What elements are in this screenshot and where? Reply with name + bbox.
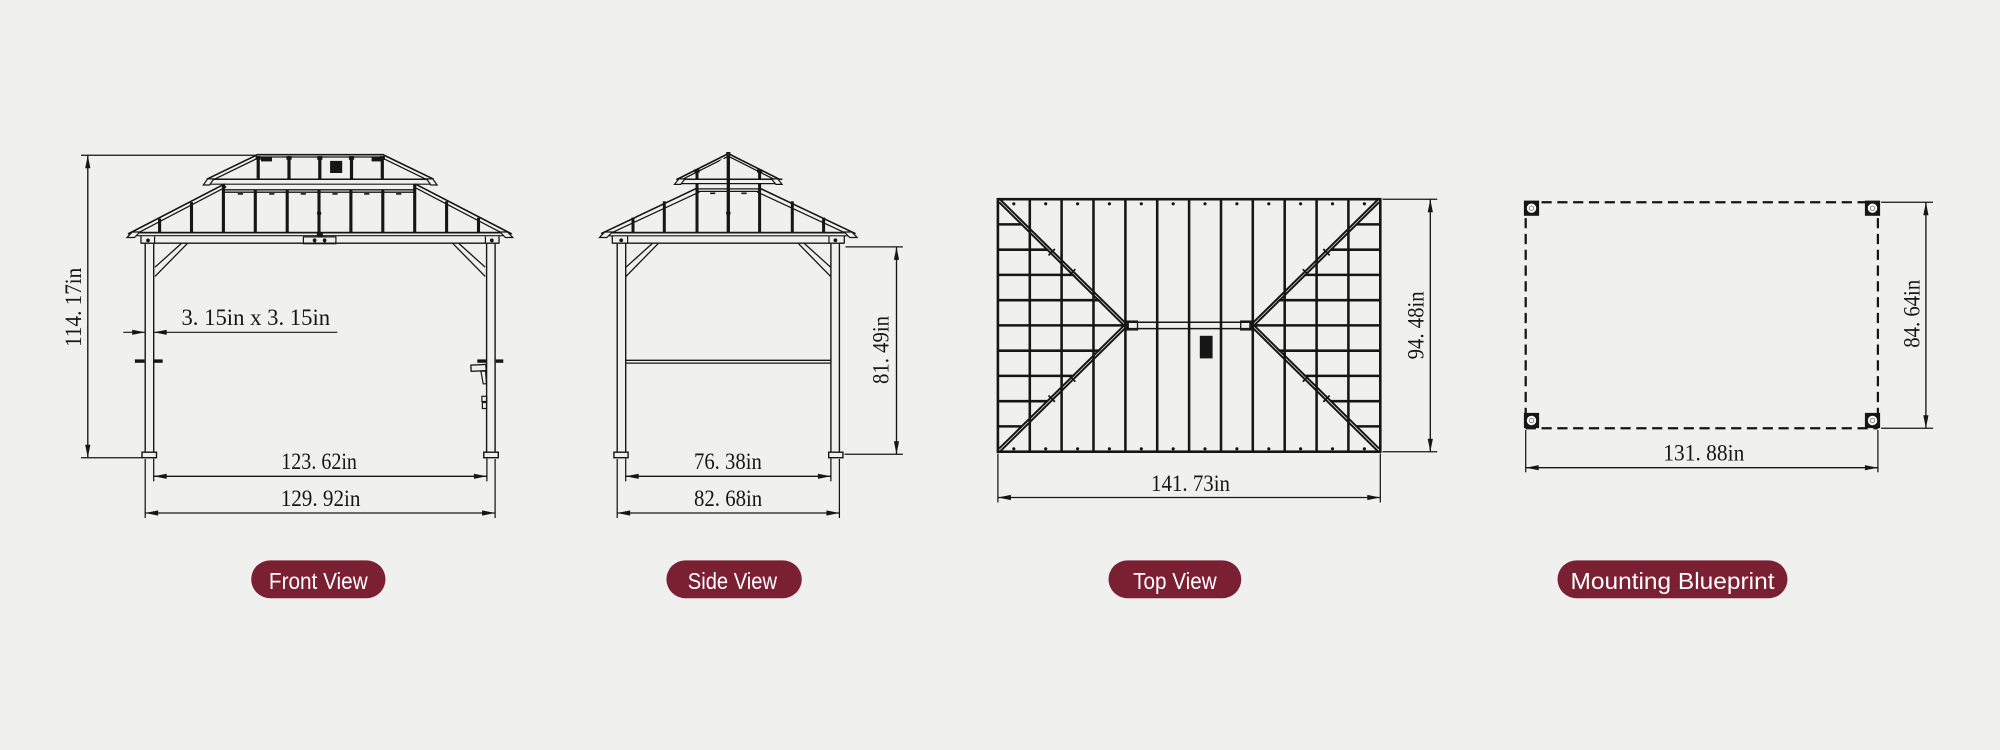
svg-text:Side View: Side View	[688, 568, 778, 594]
svg-text:82. 68in: 82. 68in	[694, 486, 762, 512]
svg-text:76. 38in: 76. 38in	[694, 449, 762, 475]
svg-text:94. 48in: 94. 48in	[1403, 291, 1429, 359]
svg-text:141. 73in: 141. 73in	[1151, 471, 1230, 497]
svg-text:131. 88in: 131. 88in	[1663, 440, 1744, 466]
svg-text:129. 92in: 129. 92in	[281, 486, 361, 512]
svg-text:Front View: Front View	[269, 568, 368, 594]
svg-text:81. 49in: 81. 49in	[869, 316, 895, 384]
svg-text:123. 62in: 123. 62in	[281, 449, 357, 475]
svg-text:3. 15in x 3. 15in: 3. 15in x 3. 15in	[181, 305, 330, 331]
svg-text:114. 17in: 114. 17in	[61, 268, 87, 347]
svg-text:84. 64in: 84. 64in	[1899, 280, 1925, 348]
svg-text:Top View: Top View	[1133, 568, 1217, 594]
svg-text:Mounting Blueprint: Mounting Blueprint	[1571, 568, 1776, 594]
